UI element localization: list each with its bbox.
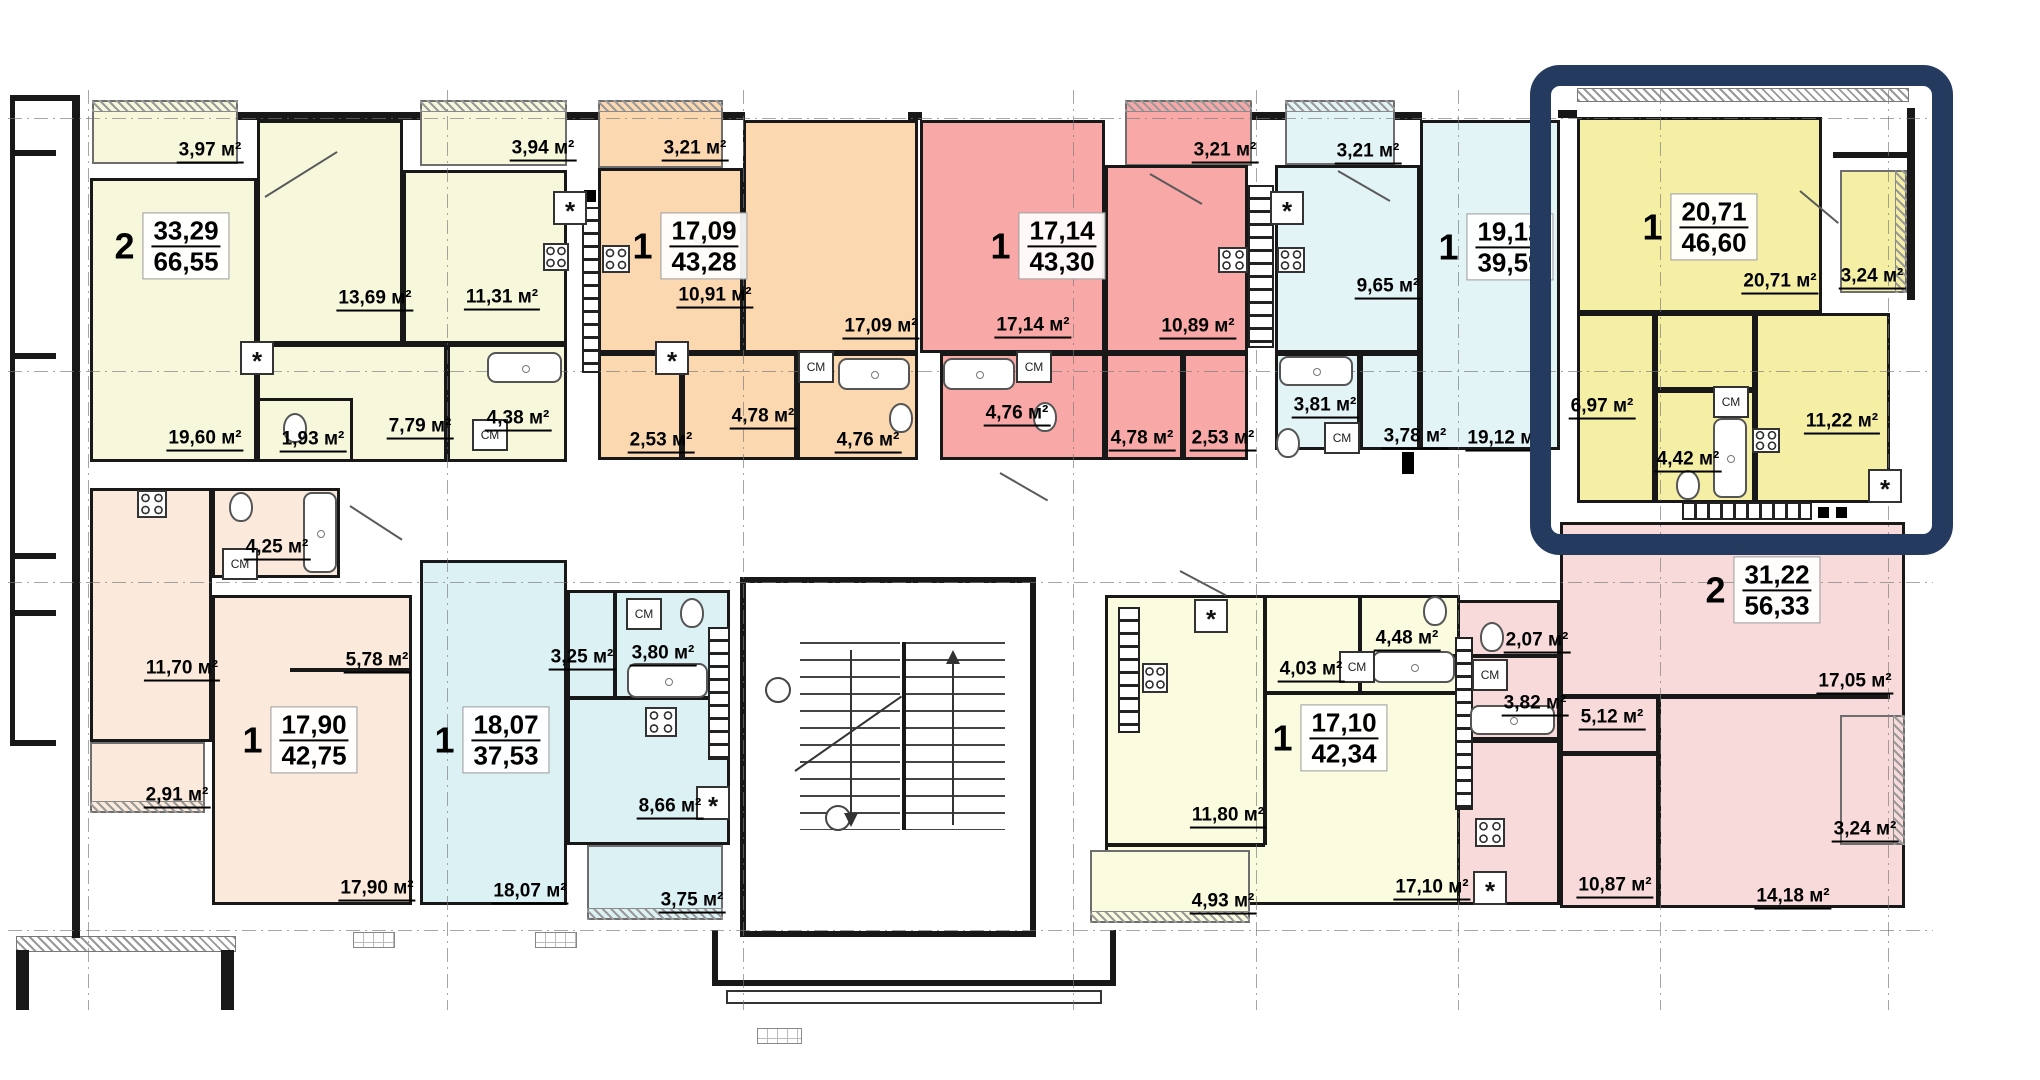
wall-segment — [567, 112, 598, 120]
room-area-label: 3,78 м² — [1382, 427, 1449, 450]
wall-segment — [1395, 112, 1422, 120]
bathtub-icon — [627, 663, 708, 698]
unit-areas: 33,2966,55 — [142, 212, 229, 279]
room-area-label: 17,14 м² — [994, 316, 1071, 339]
room-area-label: 3,75 м² — [659, 891, 726, 914]
room-area-label: 8,66 м² — [637, 797, 704, 820]
kitchen-cabinet-run — [1682, 502, 1812, 520]
room-area-label: 11,22 м² — [1804, 412, 1880, 435]
room-area-label: 2,53 м² — [628, 431, 695, 454]
room-area-label: 4,78 м² — [1109, 429, 1176, 452]
foundation-pad — [535, 932, 577, 948]
bathtub-icon — [838, 358, 910, 390]
wall-segment — [10, 553, 56, 559]
unit-living-area: 20,71 — [1679, 197, 1748, 228]
room-area-label: 4,76 м² — [984, 404, 1051, 427]
unit-rooms-count: 1 — [632, 225, 652, 267]
washing-machine-label: СМ — [1339, 651, 1375, 683]
washing-machine-label: СМ — [626, 598, 662, 630]
stair-arrow-down-head — [844, 813, 858, 827]
unit-label[interactable]: 117,9042,75 — [242, 706, 357, 773]
wall-segment — [723, 112, 745, 120]
vent-shaft-star: * — [1868, 469, 1902, 503]
shaft-box — [1818, 507, 1829, 518]
wall-segment — [10, 353, 56, 359]
stove-icon — [137, 490, 167, 518]
unit-label[interactable]: 120,7146,60 — [1642, 193, 1757, 260]
washing-machine-label: СМ — [1016, 351, 1052, 383]
unit-areas: 17,1443,30 — [1018, 212, 1105, 279]
unit-living-area: 17,10 — [1309, 708, 1378, 739]
room-area-label: 10,91 м² — [676, 286, 753, 309]
unit-label[interactable]: 231,2256,33 — [1705, 556, 1820, 623]
toilet-icon — [229, 492, 253, 522]
toilet-icon — [680, 598, 704, 628]
toilet-icon — [889, 403, 913, 433]
wall-segment — [10, 740, 56, 746]
exterior-hatch-band — [16, 936, 236, 952]
foundation-pad — [757, 1028, 802, 1044]
unit-areas: 18,0737,53 — [462, 706, 549, 773]
room-fill — [1420, 120, 1560, 450]
unit-total-area: 39,59 — [1475, 248, 1544, 277]
bathtub-icon — [303, 492, 337, 573]
room-area-label: 11,70 м² — [144, 659, 220, 682]
stair-flight — [905, 642, 1005, 830]
room-area-label: 18,07 м² — [491, 882, 568, 905]
toilet-icon — [1276, 428, 1300, 458]
room-area-label: 10,87 м² — [1576, 876, 1653, 899]
unit-living-area: 31,22 — [1742, 560, 1811, 591]
toilet-icon — [1676, 470, 1700, 500]
stair-arrow-up — [952, 662, 954, 825]
wall-segment — [10, 95, 15, 565]
room-area-label: 20,71 м² — [1741, 272, 1818, 295]
toilet-icon — [1423, 596, 1447, 626]
room-area-label: 17,90 м² — [338, 879, 415, 902]
stove-icon — [602, 245, 630, 273]
wall-segment — [10, 610, 56, 616]
wall-segment — [613, 590, 617, 698]
bathtub-icon — [1279, 356, 1353, 386]
axis-line — [88, 90, 89, 1010]
unit-total-area: 46,60 — [1679, 228, 1748, 257]
wall-segment — [238, 112, 420, 120]
washing-machine-label: СМ — [1472, 659, 1508, 691]
room-area-label: 10,89 м² — [1159, 317, 1236, 340]
kitchen-cabinet-run — [1118, 607, 1140, 733]
unit-rooms-count: 2 — [1705, 569, 1725, 611]
room-area-label: 4,78 м² — [730, 407, 797, 430]
unit-label[interactable]: 117,1042,34 — [1272, 704, 1387, 771]
room-area-label: 4,76 м² — [835, 431, 902, 454]
wall-segment — [221, 950, 234, 1010]
stove-icon — [1475, 818, 1505, 847]
room-area-label: 5,78 м² — [344, 651, 411, 674]
unit-areas: 19,1239,59 — [1466, 213, 1553, 280]
wall-segment — [1833, 152, 1907, 158]
shaft-box — [1836, 507, 1847, 518]
kitchen-cabinet-run — [708, 627, 730, 760]
wall-segment — [1105, 843, 1265, 847]
room-area-label: 17,10 м² — [1393, 878, 1470, 901]
unit-rooms-count: 1 — [1272, 717, 1292, 759]
room-area-label: 3,81 м² — [1292, 396, 1359, 419]
wall-segment — [908, 112, 922, 120]
wall-segment — [1263, 691, 1455, 695]
unit-living-area: 19,12 — [1475, 217, 1544, 248]
room-area-label: 19,12 м² — [1465, 429, 1542, 452]
room-area-label: 3,82 м² — [1502, 694, 1569, 717]
wall-segment — [72, 95, 80, 802]
room-area-label: 2,07 м² — [1504, 631, 1571, 654]
unit-label[interactable]: 118,0737,53 — [434, 706, 549, 773]
stove-icon — [1218, 247, 1248, 273]
unit-living-area: 18,07 — [471, 710, 540, 741]
wall-segment — [10, 95, 76, 101]
unit-rooms-count: 1 — [1642, 206, 1662, 248]
room-area-label: 2,91 м² — [144, 786, 211, 809]
room-area-label: 3,24 м² — [1839, 267, 1906, 290]
unit-areas: 20,7146,60 — [1670, 193, 1757, 260]
unit-living-area: 17,90 — [279, 710, 348, 741]
room-area-label: 17,09 м² — [842, 317, 919, 340]
unit-living-area: 17,09 — [669, 216, 738, 247]
room-area-label: 3,21 м² — [1192, 141, 1259, 164]
room-area-label: 2,53 м² — [1190, 429, 1257, 452]
unit-areas: 17,1042,34 — [1300, 704, 1387, 771]
room-area-label: 9,65 м² — [1355, 277, 1422, 300]
unit-areas: 17,0943,28 — [660, 212, 747, 279]
washing-machine-label: СМ — [1324, 422, 1360, 454]
washing-machine-label: СМ — [1713, 386, 1749, 418]
stove-icon — [1142, 663, 1168, 693]
wall-segment — [1560, 694, 1890, 699]
room-area-label: 19,60 м² — [166, 429, 243, 452]
room-area-label: 3,97 м² — [177, 141, 244, 164]
door-swing-line — [1000, 472, 1049, 501]
wall-segment — [1907, 108, 1915, 300]
room-area-label: 6,97 м² — [1569, 397, 1636, 420]
exterior-hatch-band — [1577, 88, 1909, 102]
room-area-label: 13,69 м² — [336, 289, 413, 312]
vent-shaft-star: * — [240, 341, 274, 375]
room-area-label: 4,25 м² — [244, 538, 311, 561]
unit-label[interactable]: 117,1443,30 — [990, 212, 1105, 279]
room-area-label: 3,21 м² — [662, 139, 729, 162]
unit-label[interactable]: 233,2966,55 — [114, 212, 229, 279]
wall-segment — [1558, 110, 1577, 118]
unit-label[interactable]: 119,1239,59 — [1438, 213, 1553, 280]
room-area-label: 3,25 м² — [549, 648, 616, 671]
wall-segment — [712, 930, 718, 986]
room-area-label: 4,03 м² — [1278, 660, 1345, 683]
unit-total-area: 42,75 — [279, 741, 348, 770]
unit-total-area: 56,33 — [1742, 591, 1811, 620]
floor-plan-canvas: СМСМСМСМСМСМСМСМСМ********3,97 м²3,94 м²… — [0, 0, 2040, 1080]
unit-rooms-count: 1 — [434, 719, 454, 761]
room-area-label: 4,42 м² — [1655, 450, 1722, 473]
stove-icon — [543, 243, 569, 271]
room-area-label: 3,21 м² — [1335, 142, 1402, 165]
toilet-icon — [1480, 622, 1504, 652]
room-area-label: 4,93 м² — [1190, 892, 1257, 915]
vent-shaft-star: * — [1270, 191, 1304, 225]
wall-segment — [1656, 694, 1661, 908]
bathtub-icon — [943, 358, 1015, 390]
stove-icon — [1277, 247, 1305, 273]
wall-segment — [10, 553, 15, 745]
washing-machine-label: СМ — [798, 351, 834, 383]
stove-icon — [1752, 428, 1780, 453]
unit-total-area: 66,55 — [151, 247, 220, 276]
room-area-label: 11,80 м² — [1190, 806, 1266, 829]
unit-total-area: 43,28 — [669, 247, 738, 276]
vent-shaft-star: * — [553, 191, 587, 225]
room-area-label: 4,48 м² — [1374, 629, 1441, 652]
wall-segment — [1110, 930, 1116, 986]
vent-shaft-star: * — [655, 341, 689, 375]
unit-rooms-count: 1 — [990, 225, 1010, 267]
unit-rooms-count: 1 — [1438, 226, 1458, 268]
unit-living-area: 33,29 — [151, 216, 220, 247]
wall-segment — [72, 800, 80, 938]
kitchen-cabinet-run — [582, 207, 600, 373]
vent-shaft-star: * — [1194, 599, 1228, 633]
wall-segment — [1560, 751, 1658, 756]
unit-total-area: 42,34 — [1309, 739, 1378, 768]
stove-icon — [645, 707, 677, 737]
unit-areas: 17,9042,75 — [270, 706, 357, 773]
room-area-label: 17,05 м² — [1816, 672, 1893, 695]
stair-arrow-down — [850, 650, 852, 813]
unit-living-area: 17,14 — [1027, 216, 1096, 247]
wall-segment — [16, 950, 29, 1010]
door-swing-line — [349, 505, 402, 540]
room-fill — [90, 488, 212, 742]
room-area-label: 3,94 м² — [510, 139, 577, 162]
room-area-label: 14,18 м² — [1754, 887, 1831, 910]
shaft-box — [1402, 452, 1414, 474]
room-area-label: 11,31 м² — [464, 288, 540, 311]
unit-total-area: 37,53 — [471, 741, 540, 770]
unit-total-area: 43,30 — [1027, 247, 1096, 276]
unit-areas: 31,2256,33 — [1733, 556, 1820, 623]
unit-label[interactable]: 117,0943,28 — [632, 212, 747, 279]
room-area-label: 7,79 м² — [387, 417, 454, 440]
stair-divider — [902, 642, 906, 830]
vent-shaft-star: * — [1473, 871, 1507, 905]
room-area-label: 4,38 м² — [485, 409, 552, 432]
bathtub-icon — [487, 352, 562, 383]
entrance-platform — [726, 990, 1102, 1004]
room-area-label: 5,12 м² — [1579, 708, 1646, 731]
foundation-pad — [353, 932, 395, 948]
room-area-label: 1,93 м² — [280, 430, 347, 453]
wall-segment — [10, 150, 56, 156]
stair-column-circle — [765, 677, 791, 703]
stair-arrow-up-head — [946, 650, 960, 664]
door-swing-line — [1180, 570, 1227, 596]
unit-rooms-count: 1 — [242, 719, 262, 761]
room-area-label: 3,80 м² — [630, 644, 697, 667]
room-fill — [1655, 313, 1755, 390]
bathtub-icon — [1372, 651, 1455, 683]
wall-segment — [712, 980, 1116, 986]
wall-segment — [1252, 112, 1285, 120]
room-area-label: 3,24 м² — [1832, 820, 1899, 843]
unit-rooms-count: 2 — [114, 225, 134, 267]
